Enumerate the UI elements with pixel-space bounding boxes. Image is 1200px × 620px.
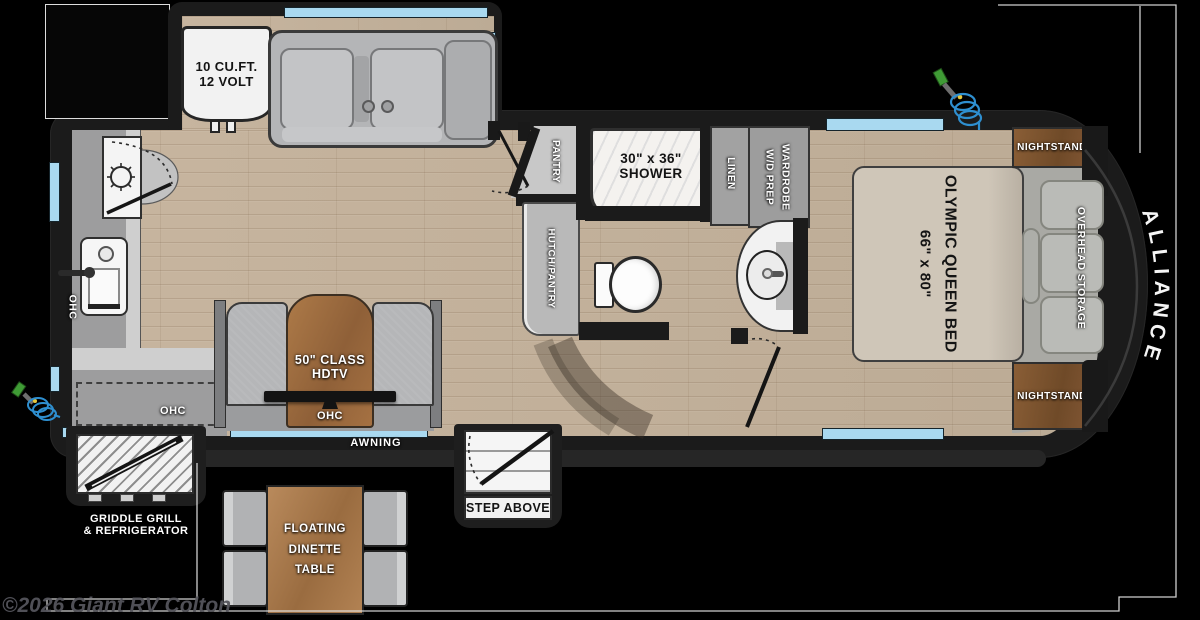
sofa-front-strip <box>282 127 442 142</box>
sink-basin-bar <box>88 304 120 309</box>
awning-label: AWNING <box>330 436 422 450</box>
tv-screen <box>264 391 396 402</box>
toilet-bowl <box>609 256 662 313</box>
watermark: ©2026 Giant RV Colton <box>2 594 231 618</box>
dinette-chair <box>362 550 408 607</box>
overhead-storage-label: OVERHEAD STORAGE <box>1006 261 1156 275</box>
cupholder <box>381 100 394 113</box>
window <box>284 7 488 18</box>
faucet-knob <box>84 267 95 278</box>
nightstand-bottom: NIGHTSTAND <box>1012 362 1092 430</box>
refrigerator: 10 CU.FT. 12 VOLT <box>181 26 272 122</box>
floorplan-image: OHC OHC 10 CU.FT. 12 VOLT PANTRY HUTCH/P… <box>0 0 1200 620</box>
window <box>49 162 60 222</box>
doorjamb <box>731 328 748 344</box>
window <box>50 366 60 392</box>
window <box>826 118 944 131</box>
overhead-storage-cushion <box>1040 180 1104 230</box>
floating-dinette-table: FLOATING DINETTE TABLE <box>266 485 364 615</box>
ohc-label-kitchen: OHC <box>148 404 198 418</box>
nightstand-top: NIGHTSTAND <box>1012 127 1092 168</box>
overhead-storage-cushion <box>1040 296 1104 354</box>
sofa-seat-right <box>370 48 444 130</box>
sofa-right-arm <box>444 40 492 140</box>
griddle-label: GRIDDLE GRILL & REFRIGERATOR <box>40 508 232 542</box>
fridge-label-1: 10 CU.FT. <box>195 59 257 74</box>
griddle-foot <box>120 494 134 502</box>
doorjamb <box>488 121 500 140</box>
window <box>822 428 944 440</box>
shower-bottom-wall <box>585 206 713 221</box>
bedroom-corner-wall <box>1082 360 1108 432</box>
fridge-foot <box>226 120 236 133</box>
awning-roller <box>190 450 1046 467</box>
dinette-chair <box>362 490 408 547</box>
front-compartment <box>45 4 170 119</box>
entry-steps <box>464 430 552 494</box>
cupholder <box>362 100 375 113</box>
fridge-label-2: 12 VOLT <box>199 74 254 89</box>
griddle-grill <box>76 434 194 494</box>
griddle-foot <box>152 494 166 502</box>
doorjamb <box>518 122 530 141</box>
bath-bottom-wall <box>579 322 669 340</box>
ohc-label-left: OHC <box>52 300 92 313</box>
ohc-label-tv: OHC <box>305 409 355 423</box>
shower-label: 30" x 36" SHOWER <box>596 142 706 190</box>
kitchen-counter-bottom-edge <box>72 348 227 370</box>
vanity-faucet-knob <box>762 268 773 279</box>
step-label: STEP ABOVE <box>464 496 552 520</box>
sink-drain <box>98 246 114 262</box>
dinette-chair <box>222 490 268 547</box>
griddle-foot <box>88 494 102 502</box>
vanity-right-wall <box>793 218 808 334</box>
tv-stand <box>322 402 338 409</box>
sofa-seat-left <box>280 48 354 130</box>
fridge-foot <box>210 120 220 133</box>
wardrobe-label: WARDROBE W/D PREP <box>727 160 827 194</box>
stove <box>102 136 142 219</box>
seat-post <box>214 300 226 428</box>
tv-label: 50" CLASS HDTV <box>280 348 380 386</box>
